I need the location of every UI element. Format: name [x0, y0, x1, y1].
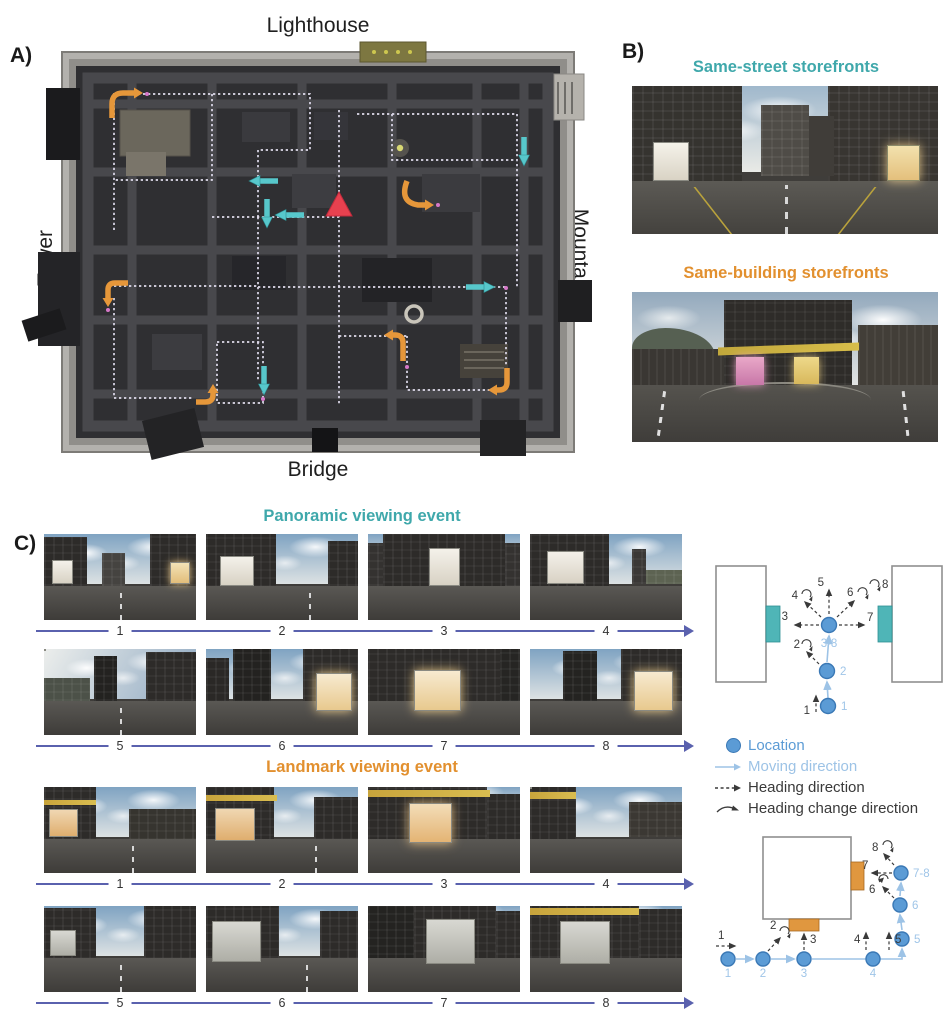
legend-item: Location [712, 735, 948, 756]
frame-thumbnail [368, 534, 520, 620]
frame-thumbnail [44, 649, 196, 735]
frame-thumbnail [206, 649, 358, 735]
svg-text:3: 3 [810, 934, 816, 946]
svg-text:6: 6 [912, 900, 918, 912]
svg-text:7: 7 [867, 612, 873, 624]
storefront-white [653, 142, 689, 181]
sequence-step-number: 4 [595, 624, 618, 639]
frame-thumbnail [368, 787, 520, 873]
same-building-image [632, 292, 938, 442]
storefront-block-orange [789, 919, 819, 931]
sequence-step-number: 5 [109, 739, 132, 754]
frame-thumbnail [206, 534, 358, 620]
svg-text:1: 1 [725, 968, 731, 980]
svg-text:2: 2 [794, 639, 800, 651]
arrowhead-icon [684, 625, 694, 637]
left-buildings [632, 349, 724, 385]
frame-thumbnail [368, 649, 520, 735]
sequence-step-number: 1 [109, 877, 132, 892]
panel-a-label: A) [10, 44, 32, 68]
svg-text:5: 5 [818, 577, 824, 589]
heading-change-direction-icon [715, 803, 741, 815]
svg-text:1: 1 [804, 705, 810, 717]
svg-text:2: 2 [840, 666, 846, 678]
panel-c-label: C) [14, 532, 36, 556]
panel-b-label: B) [622, 40, 644, 64]
legend-label: Moving direction [748, 758, 857, 775]
svg-text:6: 6 [869, 884, 875, 896]
heading-arrow-icon [795, 590, 864, 712]
landmark-diagram: 1 2 3 4 5 6 7 8 1 2 3 4 5 6 7-8 [706, 833, 952, 988]
storefront-block-teal [878, 606, 892, 642]
svg-text:4: 4 [792, 590, 799, 602]
arrowhead-icon [684, 997, 694, 1009]
legend-item: Heading change direction [712, 798, 948, 819]
sequence-arrow: 5 6 7 8 [36, 739, 694, 754]
frame-thumbnail [530, 787, 682, 873]
frame-thumbnail [530, 649, 682, 735]
city-map [62, 52, 574, 452]
svg-text:2: 2 [770, 920, 776, 932]
sequence-step-number: 1 [109, 624, 132, 639]
frame-thumbnail [44, 534, 196, 620]
frame-thumbnail [530, 906, 682, 992]
moving-direction-icon [715, 763, 741, 771]
svg-text:6: 6 [847, 587, 853, 599]
same-building-title: Same-building storefronts [683, 264, 888, 283]
far-building-2 [809, 116, 833, 177]
storefront-yellow [794, 357, 818, 384]
storefront-pink [736, 357, 764, 386]
sequence-arrow: 1 2 3 4 [36, 877, 694, 892]
legend: Location Moving direction Heading direct… [712, 735, 948, 819]
legend-item: Heading direction [712, 777, 948, 798]
legend-label: Location [748, 737, 805, 754]
lane-line [785, 185, 788, 234]
building-block [716, 566, 766, 682]
svg-text:7: 7 [862, 860, 868, 872]
sequence-arrow: 1 2 3 4 [36, 624, 694, 639]
svg-text:5: 5 [895, 934, 901, 946]
sequence-step-number: 8 [595, 739, 618, 754]
frame-thumbnail [206, 787, 358, 873]
storefront-block-teal [766, 606, 780, 642]
frame-thumbnail [44, 906, 196, 992]
location-icon [726, 738, 741, 753]
sequence-arrow: 5 6 7 8 [36, 996, 694, 1011]
figure: A) Lighthouse Bridge Tower Mountain [0, 0, 952, 1020]
storefront-lit [887, 145, 920, 181]
frame-thumbnail [530, 534, 682, 620]
svg-text:4: 4 [870, 968, 877, 980]
location-node [820, 618, 837, 714]
svg-text:3: 3 [801, 968, 807, 980]
sequence-step-number: 7 [433, 739, 456, 754]
sequence-step-number: 4 [595, 877, 618, 892]
landmark-label-bridge: Bridge [288, 458, 349, 482]
landmark-event-title: Landmark viewing event [266, 758, 458, 777]
frame-thumbnail [44, 787, 196, 873]
svg-text:5: 5 [914, 934, 920, 946]
sequence-step-number: 2 [271, 624, 294, 639]
building-block [892, 566, 942, 682]
sequence-step-number: 6 [271, 739, 294, 754]
right-buildings [858, 325, 938, 385]
sequence-step-number: 5 [109, 996, 132, 1011]
legend-label: Heading change direction [748, 800, 918, 817]
svg-text:1: 1 [841, 701, 847, 713]
same-street-image [632, 86, 938, 234]
sequence-step-number: 7 [433, 996, 456, 1011]
legend-item: Moving direction [712, 756, 948, 777]
panoramic-diagram: 3 4 5 6 7 8 2 1 3-8 2 1 [706, 548, 952, 728]
frame-thumbnail [368, 906, 520, 992]
far-building [761, 105, 810, 176]
frame-thumbnail [206, 906, 358, 992]
svg-text:2: 2 [760, 968, 766, 980]
sequence-step-number: 3 [433, 624, 456, 639]
svg-text:7-8: 7-8 [913, 868, 930, 880]
landmark-label-lighthouse: Lighthouse [267, 14, 370, 38]
svg-text:3: 3 [782, 611, 788, 623]
arrowhead-icon [684, 740, 694, 752]
svg-text:8: 8 [882, 579, 888, 591]
svg-text:4: 4 [854, 934, 861, 946]
right-building [828, 86, 938, 184]
svg-text:8: 8 [872, 842, 878, 854]
svg-text:3-8: 3-8 [821, 638, 838, 650]
arrowhead-icon [684, 878, 694, 890]
sequence-step-number: 8 [595, 996, 618, 1011]
sequence-step-number: 6 [271, 996, 294, 1011]
panoramic-event-title: Panoramic viewing event [263, 507, 460, 526]
heading-direction-icon [715, 784, 741, 792]
svg-text:1: 1 [718, 930, 724, 942]
same-street-title: Same-street storefronts [693, 58, 879, 77]
sequence-step-number: 3 [433, 877, 456, 892]
sequence-step-number: 2 [271, 877, 294, 892]
building-block [763, 837, 851, 919]
legend-label: Heading direction [748, 779, 865, 796]
